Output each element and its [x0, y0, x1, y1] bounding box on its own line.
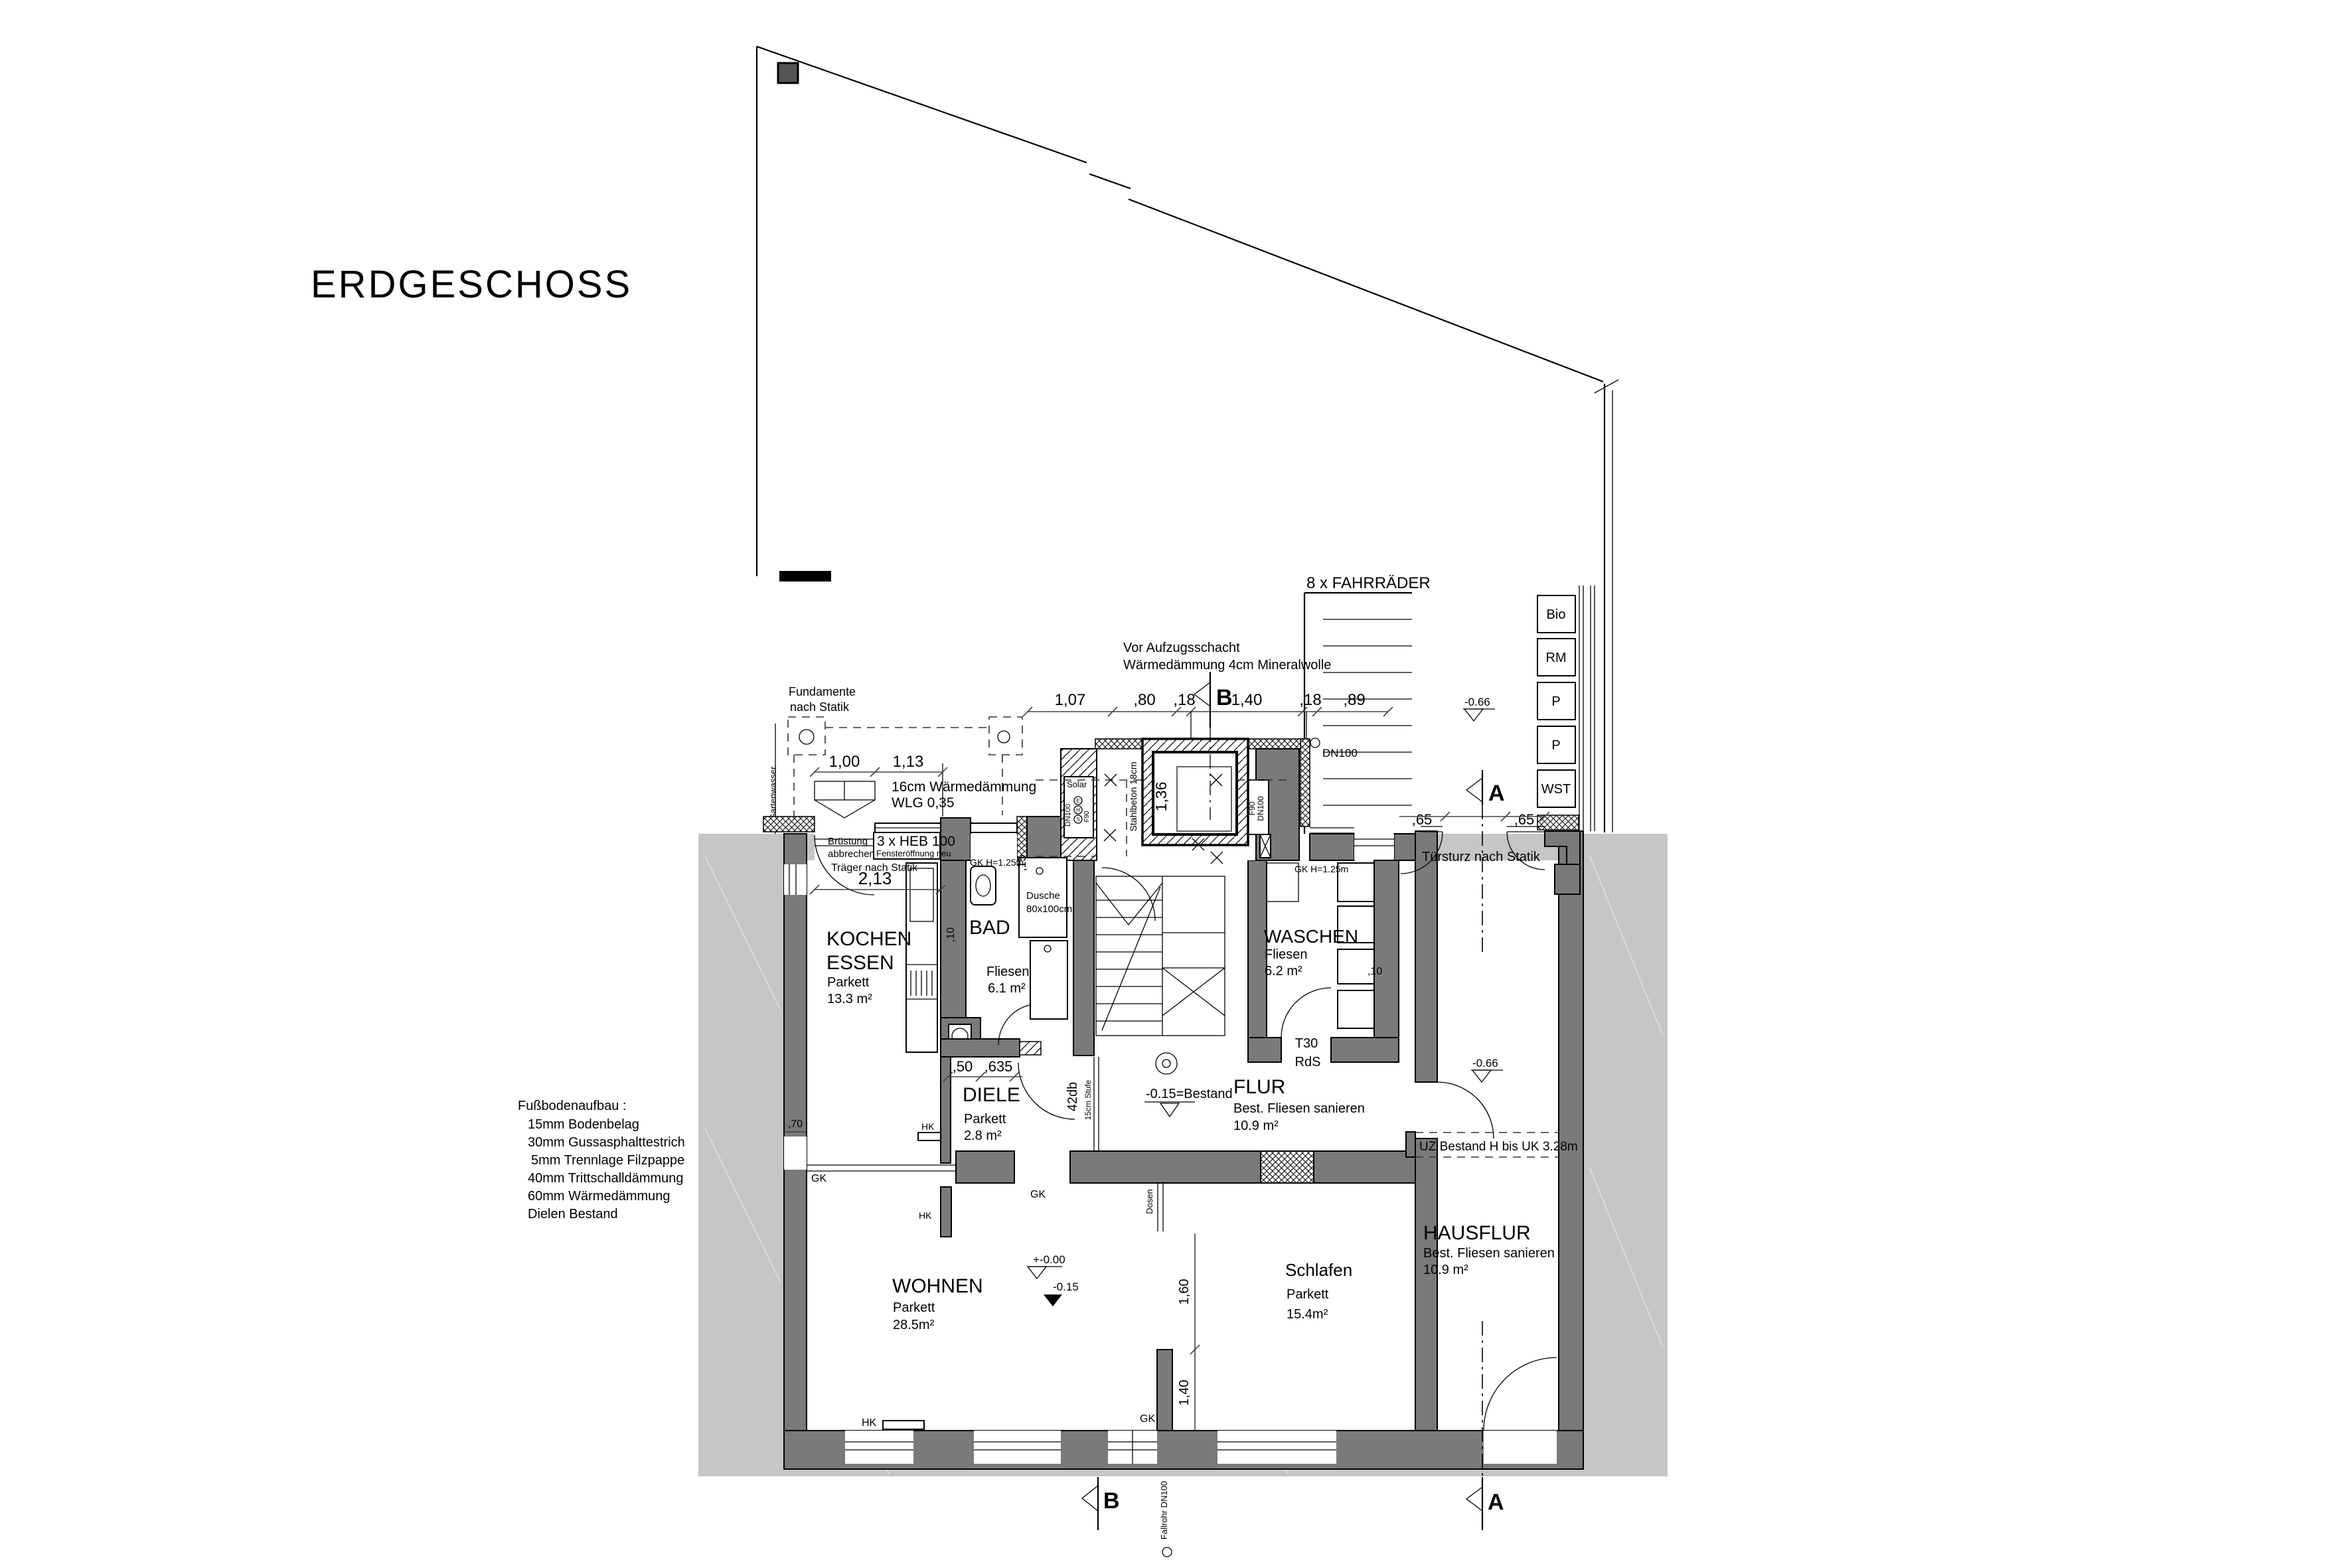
svg-text:nach Statik: nach Statik — [790, 700, 850, 714]
storage-box-label: WST — [1541, 782, 1571, 797]
room-name: ESSEN — [826, 952, 894, 974]
svg-text:2,13: 2,13 — [858, 868, 892, 888]
section-mark-b-bottom: B — [1082, 1477, 1120, 1530]
svg-text:DN100: DN100 — [1256, 796, 1265, 821]
gartenwasser-label: Gartenwasser — [768, 766, 778, 821]
door-swing — [1102, 868, 1155, 921]
svg-text:A: A — [1488, 1490, 1504, 1515]
svg-text:F90: F90 — [1247, 801, 1257, 815]
svg-text:1,40: 1,40 — [1231, 691, 1263, 709]
level-triangle-icon — [1472, 1070, 1491, 1082]
toilet — [971, 866, 996, 905]
bike-parking-label: 8 x FAHRRÄDER — [1306, 574, 1431, 592]
door-swing — [1281, 988, 1331, 1038]
svg-text:1,07: 1,07 — [1055, 691, 1086, 709]
svg-text:5mm Trennlage Filzpappe: 5mm Trennlage Filzpappe — [531, 1153, 684, 1168]
storage-box-label: P — [1551, 738, 1560, 753]
svg-text:DN100: DN100 — [1064, 804, 1072, 826]
svg-text:abbrechen: abbrechen — [828, 848, 875, 860]
room-name: BAD — [969, 917, 1010, 939]
svg-text:Dielen Bestand: Dielen Bestand — [528, 1207, 618, 1221]
svg-text:Vor Aufzugsschacht: Vor Aufzugsschacht — [1123, 641, 1240, 655]
svg-text:B: B — [1216, 685, 1233, 710]
kitchen-counter — [906, 863, 937, 1052]
room-area: 6.1 m² — [988, 981, 1026, 996]
bathtub — [1030, 941, 1067, 1019]
room-finish: Parkett — [827, 975, 870, 990]
section-triangle-icon — [1466, 1487, 1482, 1511]
section-triangle-icon — [1466, 778, 1482, 802]
svg-text:A: A — [1488, 781, 1505, 806]
room-label-kochen: KOCHEN ESSEN Parkett 13.3 m² — [826, 928, 911, 1006]
room-area: 2.8 m² — [964, 1129, 1002, 1143]
legend-heading: Fußbodenaufbau : — [518, 1099, 626, 1113]
svg-text:,635: ,635 — [984, 1058, 1013, 1075]
svg-text:,18: ,18 — [1299, 691, 1321, 709]
svg-text:Fallrohr DN100: Fallrohr DN100 — [1159, 1481, 1169, 1539]
svg-text:16cm Wärmedämmung: 16cm Wärmedämmung — [892, 779, 1036, 795]
room-name: WOHNEN — [892, 1275, 983, 1297]
svg-text:E: E — [1076, 798, 1079, 804]
level-triangle-icon — [1044, 1294, 1062, 1306]
svg-text:1,00: 1,00 — [829, 753, 860, 771]
svg-text:,89: ,89 — [1343, 691, 1365, 709]
room-area: 10.9 m² — [1423, 1263, 1468, 1277]
svg-text:,10: ,10 — [945, 927, 957, 942]
svg-text:,10: ,10 — [1368, 966, 1382, 977]
svg-text:1,40: 1,40 — [1177, 1380, 1192, 1406]
svg-text:,65: ,65 — [1412, 811, 1433, 828]
svg-text:1,13: 1,13 — [893, 753, 924, 771]
svg-text:-0.66: -0.66 — [1464, 696, 1490, 708]
svg-text:,18: ,18 — [1173, 691, 1195, 709]
svg-text:H: H — [1076, 807, 1080, 813]
room-label-schlafen: Schlafen Parkett 15.4m² — [1285, 1260, 1352, 1322]
svg-text:80x100cm: 80x100cm — [1026, 903, 1072, 915]
room-finish: Parkett — [964, 1112, 1006, 1127]
svg-text:,70: ,70 — [788, 1119, 803, 1130]
level-triangle-icon — [1160, 1103, 1179, 1117]
room-area: 28.5m² — [893, 1318, 935, 1332]
svg-text:HK: HK — [919, 1210, 932, 1221]
svg-text:F90: F90 — [1083, 811, 1091, 823]
svg-text:T30: T30 — [1295, 1036, 1318, 1051]
svg-text:Fensteröffnung neu: Fensteröffnung neu — [876, 848, 951, 858]
level-triangle-icon — [1028, 1267, 1046, 1279]
room-name: KOCHEN — [826, 928, 911, 950]
svg-text:1,36: 1,36 — [1152, 782, 1170, 812]
svg-text:Brüstung: Brüstung — [828, 836, 868, 847]
svg-text:Dusche: Dusche — [1026, 890, 1060, 902]
svg-text:,15: ,15 — [1015, 854, 1028, 871]
floor-plan-drawing: ERDGESCHOSS Fußbodenaufbau : 15mm Bodenb… — [0, 0, 2352, 1568]
room-name: Schlafen — [1285, 1260, 1352, 1280]
bike-stall-lines — [1323, 619, 1412, 805]
svg-text:Türsturz nach Statik: Türsturz nach Statik — [1422, 850, 1541, 864]
bike-parking: 8 x FAHRRÄDER — [1304, 574, 1431, 834]
svg-text:DN100: DN100 — [1322, 747, 1358, 759]
storage-box-label: RM — [1545, 651, 1566, 665]
svg-text:HK: HK — [862, 1417, 877, 1429]
room-finish: Parkett — [1287, 1287, 1329, 1302]
svg-text:GK: GK — [1030, 1189, 1046, 1200]
room-finish: Fliesen — [1265, 947, 1307, 962]
room-area: 6.2 m² — [1265, 964, 1302, 979]
svg-text:B: B — [1103, 1488, 1120, 1514]
room-area: 13.3 m² — [827, 992, 872, 1006]
svg-text:GK: GK — [1140, 1413, 1155, 1425]
room-finish: Best. Fliesen sanieren — [1423, 1246, 1555, 1261]
svg-text:HK: HK — [921, 1121, 935, 1132]
floor-plan-sheet: ERDGESCHOSS Fußbodenaufbau : 15mm Bodenb… — [0, 0, 2352, 1568]
room-name: DIELE — [963, 1084, 1020, 1106]
svg-text:30mm Gussasphalttestrich: 30mm Gussasphalttestrich — [528, 1135, 685, 1150]
room-label-hausflur: HAUSFLUR Best. Fliesen sanieren 10.9 m² — [1423, 1222, 1555, 1277]
svg-text:,50: ,50 — [953, 1058, 973, 1075]
room-name: WASCHEN — [1264, 926, 1358, 947]
storage-box-label: Bio — [1547, 607, 1566, 622]
svg-text:Wärmedämmung 4cm Mineralwolle: Wärmedämmung 4cm Mineralwolle — [1123, 658, 1331, 672]
level-triangle-icon — [1464, 709, 1483, 721]
svg-text:42db: 42db — [1065, 1082, 1080, 1112]
room-label-flur: FLUR Best. Fliesen sanieren 10.9 m² — [1233, 1076, 1365, 1133]
svg-text:-0.15=Bestand: -0.15=Bestand — [1146, 1087, 1233, 1101]
boundary-marker-icon — [778, 63, 798, 83]
svg-text:60mm Wärmedämmung: 60mm Wärmedämmung — [528, 1189, 670, 1204]
elevator-note: Vor Aufzugsschacht Wärmedämmung 4cm Mine… — [1123, 641, 1331, 672]
room-name: HAUSFLUR — [1423, 1222, 1531, 1244]
room-finish: Fliesen — [986, 965, 1029, 979]
legend-floor-buildup: Fußbodenaufbau : 15mm Bodenbelag 30mm Gu… — [518, 1099, 685, 1221]
storage-boxes: Bio RM P P WST — [1537, 595, 1579, 830]
svg-text:Stahlbeton 18cm: Stahlbeton 18cm — [1128, 761, 1138, 831]
door-swing — [1484, 1358, 1557, 1431]
stairs — [1096, 868, 1225, 1074]
room-label-diele: DIELE Parkett 2.8 m² — [963, 1084, 1020, 1143]
svg-text:UZ Bestand H bis UK 3.28m: UZ Bestand H bis UK 3.28m — [1419, 1140, 1578, 1154]
room-label-wohnen: WOHNEN Parkett 28.5m² — [892, 1275, 983, 1332]
svg-text:WLG 0,35: WLG 0,35 — [892, 795, 955, 811]
svg-text:Dosen: Dosen — [1144, 1189, 1154, 1214]
room-area: 15.4m² — [1287, 1307, 1328, 1322]
svg-text:GK: GK — [811, 1173, 826, 1184]
section-mark-a-bottom: A — [1466, 1321, 1504, 1530]
svg-text:15mm Bodenbelag: 15mm Bodenbelag — [528, 1117, 639, 1132]
svg-text:,65: ,65 — [1514, 811, 1535, 828]
room-name: FLUR — [1233, 1076, 1285, 1098]
svg-text:S: S — [1076, 817, 1079, 823]
section-triangle-icon — [1194, 682, 1210, 706]
svg-text:+-0.00: +-0.00 — [1033, 1253, 1065, 1266]
svg-text:3 x HEB 100: 3 x HEB 100 — [877, 834, 955, 849]
room-finish: Best. Fliesen sanieren — [1233, 1101, 1365, 1116]
door-swing — [1437, 1082, 1494, 1138]
storage-box-label: P — [1551, 694, 1560, 709]
svg-text:,80: ,80 — [1133, 691, 1155, 709]
svg-text:40mm Trittschalldämmung: 40mm Trittschalldämmung — [528, 1171, 684, 1186]
svg-text:Fundamente: Fundamente — [789, 685, 856, 698]
room-finish: Parkett — [893, 1300, 935, 1315]
svg-text:-0.66: -0.66 — [1472, 1057, 1498, 1069]
svg-text:15cm Stufe: 15cm Stufe — [1083, 1079, 1093, 1120]
svg-text:Solar: Solar — [1067, 779, 1087, 789]
room-area: 10.9 m² — [1233, 1119, 1279, 1133]
svg-text:GK H=1.25m: GK H=1.25m — [1294, 864, 1348, 874]
svg-text:1,60: 1,60 — [1177, 1279, 1192, 1305]
svg-text:-0.15: -0.15 — [1053, 1281, 1079, 1293]
page-title: ERDGESCHOSS — [311, 263, 632, 306]
svg-text:RdS: RdS — [1295, 1055, 1321, 1069]
section-triangle-icon — [1082, 1486, 1098, 1511]
